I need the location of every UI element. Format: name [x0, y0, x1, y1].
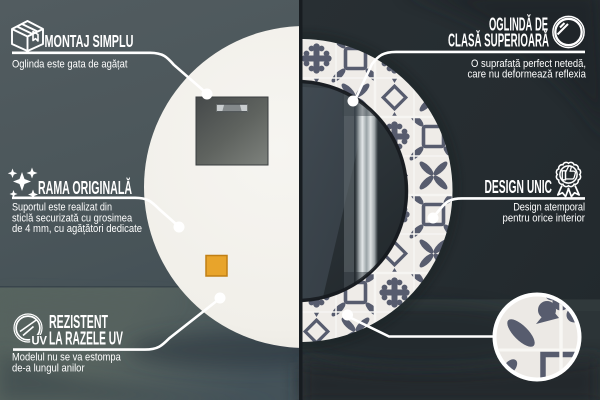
- svg-text:pentru orice interior: pentru orice interior: [503, 212, 586, 224]
- svg-text:de-a lungul anilor: de-a lungul anilor: [12, 362, 85, 374]
- svg-text:DESIGN UNIC: DESIGN UNIC: [485, 177, 553, 197]
- svg-text:Oglinda este gata de agățat: Oglinda este gata de agățat: [12, 58, 128, 70]
- svg-text:RAMA ORIGINALĂ: RAMA ORIGINALĂ: [38, 177, 132, 198]
- svg-text:MONTAJ SIMPLU: MONTAJ SIMPLU: [45, 31, 134, 51]
- svg-text:UV: UV: [32, 336, 48, 348]
- svg-text:CLASĂ SUPERIOARĂ: CLASĂ SUPERIOARĂ: [448, 29, 549, 50]
- svg-text:care nu deformează reflexia: care nu deformează reflexia: [468, 68, 587, 80]
- svg-text:LA RAZELE UV: LA RAZELE UV: [49, 328, 123, 348]
- svg-text:de 4 mm, cu agățători dedicate: de 4 mm, cu agățători dedicate: [12, 223, 142, 235]
